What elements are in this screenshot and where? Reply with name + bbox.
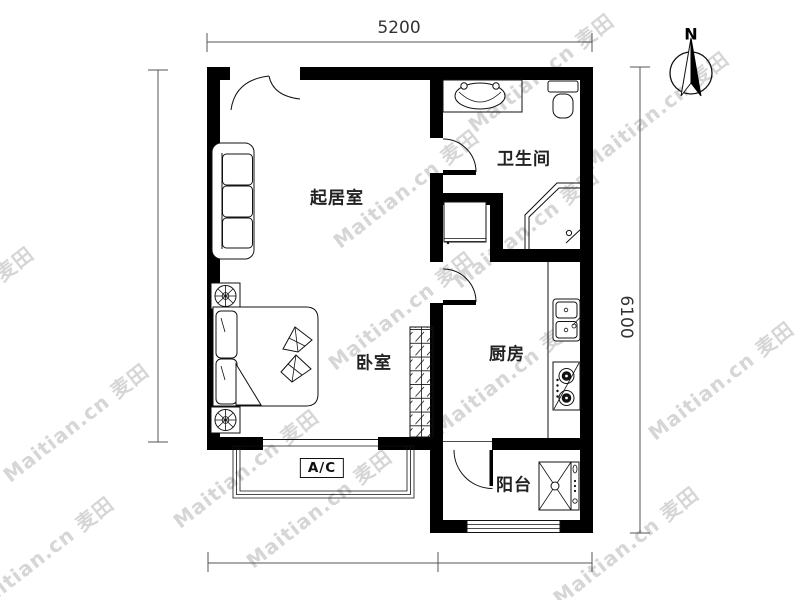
toilet [548, 81, 578, 118]
nightstand-bottom [211, 407, 240, 433]
floorplan-canvas: Maitian.cn 麦田 Maitian.cn 麦田 Maitian.cn 麦… [0, 0, 799, 600]
radiator [410, 327, 433, 437]
north-label: N [684, 25, 697, 44]
bathroom-sink [443, 80, 522, 112]
living-room-label: 起居室 [310, 184, 364, 209]
sofa [212, 143, 254, 259]
entry-door-arc [231, 76, 300, 110]
washing-machine [539, 462, 579, 510]
dimension-left [148, 70, 168, 442]
kitchen-sink [553, 299, 580, 341]
shower [525, 183, 581, 249]
balcony-label: 阳台 [496, 471, 532, 496]
bedroom-label: 卧室 [356, 349, 392, 374]
bathroom-label: 卫生间 [497, 145, 551, 170]
balcony-door-arc [443, 442, 493, 489]
kitchen-label: 厨房 [489, 340, 525, 365]
north-arrow-icon [670, 38, 712, 96]
walls [207, 67, 593, 533]
dimension-height-value: 6100 [616, 295, 636, 338]
ac-unit-label: A/C [300, 458, 344, 478]
nightstand-top [211, 283, 240, 309]
balcony-window [467, 521, 560, 533]
dimension-bottom [208, 552, 592, 572]
kitchen-door-arc [443, 269, 476, 305]
bathroom-door-arc [443, 139, 476, 175]
floorplan-drawing [0, 0, 799, 600]
washer-niche-appliance [444, 202, 486, 244]
bed [213, 307, 318, 406]
stove [553, 362, 580, 410]
dimension-width-value: 5200 [377, 18, 420, 38]
